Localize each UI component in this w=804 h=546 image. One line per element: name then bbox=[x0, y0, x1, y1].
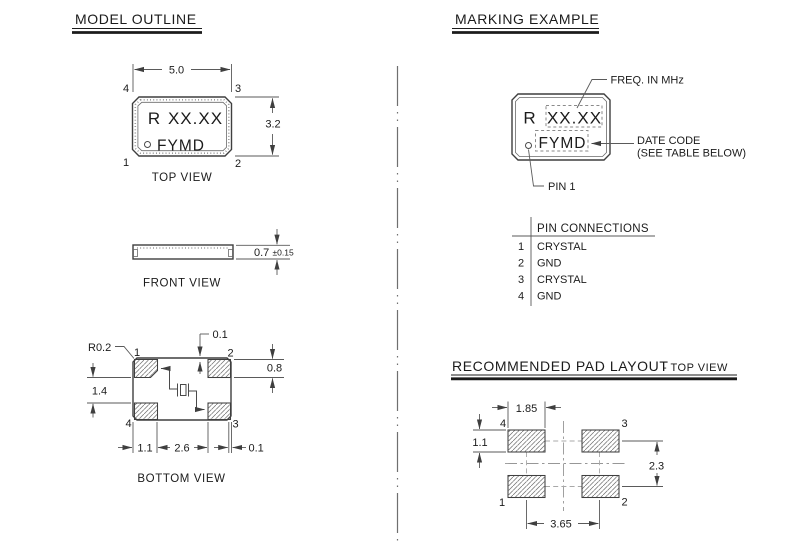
bottom-view-caption: BOTTOM VIEW bbox=[137, 473, 225, 485]
front-view-caption: FRONT VIEW bbox=[143, 278, 221, 290]
pin-table-header: PIN CONNECTIONS bbox=[537, 223, 649, 235]
pad-layout-title: RECOMMENDED PAD LAYOUT bbox=[452, 358, 668, 374]
pad-layout-title-suffix: - TOP VIEW bbox=[663, 362, 728, 374]
pad-layout-section: RECOMMENDED PAD LAYOUT - TOP VIEW 4 3 1 … bbox=[451, 358, 737, 531]
table-row: 3 CRYSTAL bbox=[518, 274, 587, 286]
datasheet-drawing-page: MODEL OUTLINE 5.0 4 3 1 2 R XX.XX FYMD bbox=[0, 0, 804, 546]
layout-pad-width-dim: 1.85 bbox=[516, 403, 537, 415]
layout-row-pitch-dim: 2.3 bbox=[649, 461, 664, 473]
top-view-marking-prefix: R bbox=[148, 109, 161, 128]
layout-pin-3: 3 bbox=[621, 418, 627, 430]
pin-number: 4 bbox=[518, 291, 524, 303]
pin-number: 3 bbox=[518, 274, 524, 286]
bottom-view-pin-3: 3 bbox=[232, 419, 238, 431]
table-row: 4 GND bbox=[518, 291, 562, 303]
model-outline-section: MODEL OUTLINE 5.0 4 3 1 2 R XX.XX FYMD bbox=[72, 11, 294, 485]
bottom-view-pad-span-dim: 2.6 bbox=[174, 443, 189, 455]
pin1-callout-label: PIN 1 bbox=[548, 181, 576, 193]
marking-datecode: FYMD bbox=[539, 135, 587, 152]
top-view: 5.0 4 3 1 2 R XX.XX FYMD 3.2 TOP VIEW bbox=[123, 64, 281, 184]
layout-column-pitch-dim: 3.65 bbox=[550, 519, 571, 531]
bottom-view-pad-3 bbox=[208, 403, 231, 420]
model-outline-title: MODEL OUTLINE bbox=[75, 11, 197, 27]
datecode-callout-line2: (SEE TABLE BELOW) bbox=[637, 148, 746, 160]
pin-connection: CRYSTAL bbox=[537, 241, 587, 253]
bottom-view-pin-1: 1 bbox=[134, 347, 140, 359]
marking-prefix: R bbox=[523, 109, 536, 128]
bottom-view-pad-width-dim: 1.1 bbox=[137, 443, 152, 455]
pin-connection: CRYSTAL bbox=[537, 274, 587, 286]
bottom-view-right-offset-dim: 0.1 bbox=[249, 443, 264, 455]
marking-example-title: MARKING EXAMPLE bbox=[455, 11, 599, 27]
top-view-pin-3: 3 bbox=[235, 83, 241, 95]
drawing-svg: MODEL OUTLINE 5.0 4 3 1 2 R XX.XX FYMD bbox=[0, 0, 804, 546]
layout-pad-2 bbox=[582, 476, 619, 498]
layout-pad-3 bbox=[582, 430, 619, 452]
pin-connection: GND bbox=[537, 258, 562, 270]
bottom-view-pad-4 bbox=[135, 403, 158, 420]
front-view-thickness-dim: 0.7 bbox=[254, 247, 269, 259]
bottom-view-top-offset-dim: 0.1 bbox=[213, 329, 228, 341]
layout-pin-1: 1 bbox=[499, 497, 505, 509]
top-view-marking-datecode: FYMD bbox=[157, 138, 205, 155]
front-view-package-body bbox=[133, 245, 233, 259]
layout-pad-1 bbox=[508, 476, 545, 498]
bottom-view-pad-gap-dim: 1.4 bbox=[92, 386, 107, 398]
layout-pin-4: 4 bbox=[500, 418, 506, 430]
pin-connections-table: PIN CONNECTIONS 1 CRYSTAL 2 GND 3 CRYSTA… bbox=[512, 217, 655, 306]
top-view-pin-1: 1 bbox=[123, 157, 129, 169]
top-view-height-dim: 3.2 bbox=[265, 119, 280, 131]
layout-pad-4 bbox=[508, 430, 545, 452]
datecode-callout-line1: DATE CODE bbox=[637, 135, 700, 147]
marking-example-section: MARKING EXAMPLE R XX.XX FYMD FREQ. IN MH… bbox=[452, 11, 746, 306]
layout-pin-2: 2 bbox=[621, 497, 627, 509]
freq-callout-label: FREQ. IN MHz bbox=[611, 75, 684, 87]
front-view-thickness-tol: ±0.15 bbox=[273, 248, 294, 258]
top-view-marking-freq: XX.XX bbox=[168, 109, 223, 128]
pin-connection: GND bbox=[537, 291, 562, 303]
top-view-pin-2: 2 bbox=[235, 158, 241, 170]
bottom-view-corner-radius: R0.2 bbox=[88, 342, 111, 354]
front-view: 0.7 ±0.15 FRONT VIEW bbox=[133, 229, 294, 290]
bottom-view-pin-2: 2 bbox=[227, 348, 233, 360]
bottom-view-pad-height-dim: 0.8 bbox=[267, 363, 282, 375]
bottom-view-pin-4: 4 bbox=[125, 418, 131, 430]
layout-pad-height-dim: 1.1 bbox=[472, 437, 487, 449]
pin-number: 1 bbox=[518, 241, 524, 253]
bottom-view-pad-2 bbox=[208, 360, 231, 378]
marking-freq: XX.XX bbox=[547, 109, 602, 128]
top-view-width-dim: 5.0 bbox=[169, 65, 184, 77]
table-row: 1 CRYSTAL bbox=[518, 241, 587, 253]
top-view-caption: TOP VIEW bbox=[152, 172, 213, 184]
top-view-pin-4: 4 bbox=[123, 83, 129, 95]
pin-number: 2 bbox=[518, 258, 524, 270]
table-row: 2 GND bbox=[518, 258, 562, 270]
bottom-view: R0.2 1 2 4 3 0.1 0.8 1.4 bbox=[87, 329, 284, 485]
